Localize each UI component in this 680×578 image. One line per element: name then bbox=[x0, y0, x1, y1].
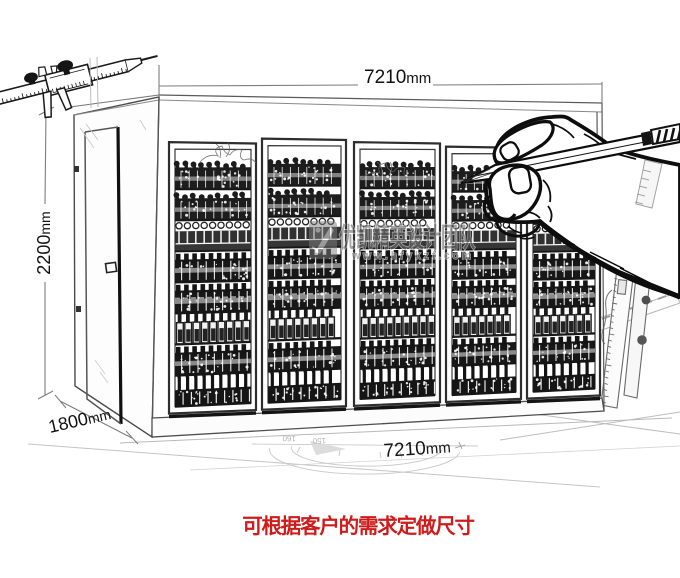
svg-text:150: 150 bbox=[312, 436, 326, 445]
svg-text:2200mm: 2200mm bbox=[34, 211, 54, 274]
svg-text:可根据客户的需求定做尺寸: 可根据客户的需求定做尺寸 bbox=[242, 514, 474, 538]
svg-text:优凯精英设计团队: 优凯精英设计团队 bbox=[339, 223, 476, 253]
svg-text:160: 160 bbox=[282, 434, 296, 443]
svg-text:7210mm: 7210mm bbox=[364, 67, 431, 88]
svg-text:w w w . h f y k z t . c o m: w w w . h f y k z t . c o m bbox=[351, 250, 471, 262]
